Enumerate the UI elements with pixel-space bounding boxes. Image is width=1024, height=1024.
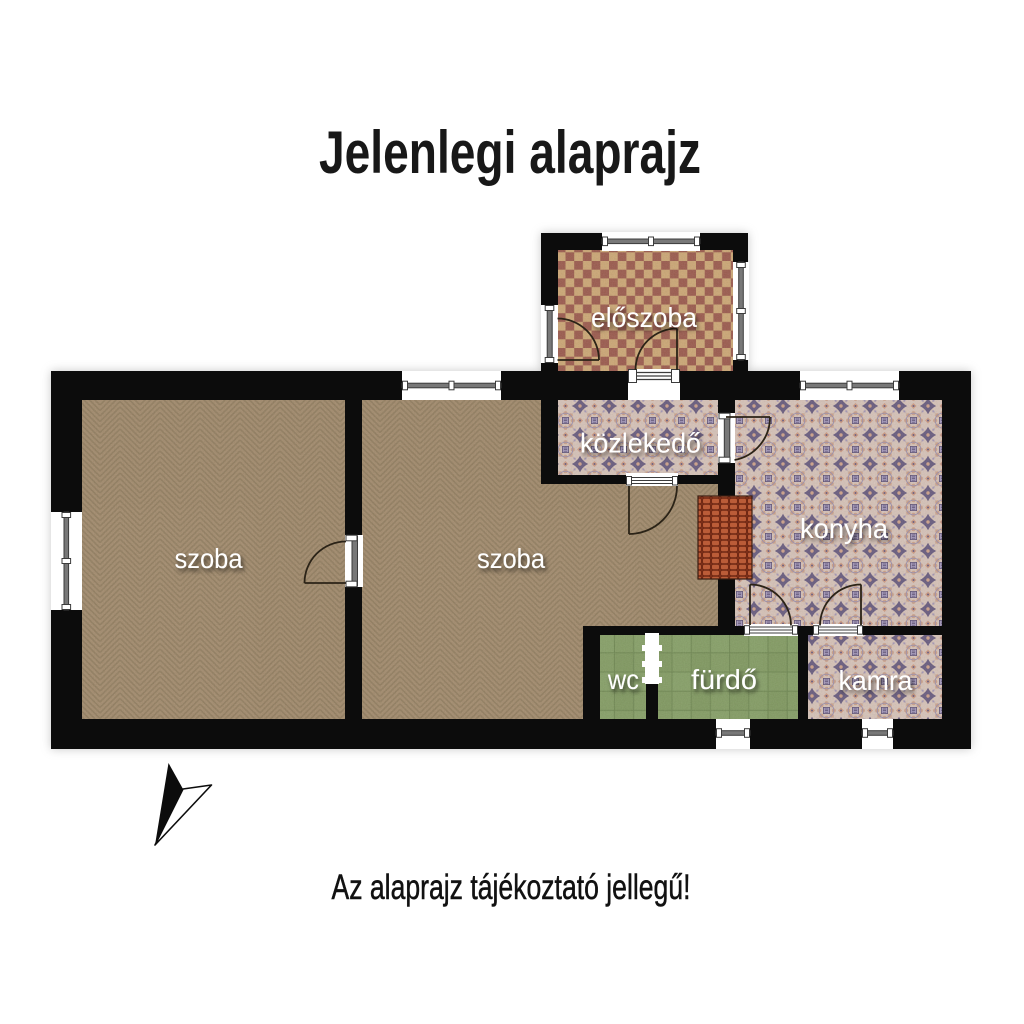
svg-text:szoba: szoba — [175, 543, 243, 574]
svg-text:wc: wc — [607, 664, 639, 695]
svg-text:kamra: kamra — [839, 665, 913, 696]
svg-text:szoba: szoba — [477, 543, 545, 574]
svg-text:konyha: konyha — [800, 513, 888, 544]
svg-text:közlekedő: közlekedő — [580, 428, 701, 459]
svg-text:Az alaprajz tájékoztató jelleg: Az alaprajz tájékoztató jellegű! — [332, 868, 691, 907]
svg-text:előszoba: előszoba — [591, 302, 697, 333]
svg-text:fürdő: fürdő — [691, 664, 757, 695]
svg-text:Jelenlegi alaprajz: Jelenlegi alaprajz — [319, 119, 701, 186]
